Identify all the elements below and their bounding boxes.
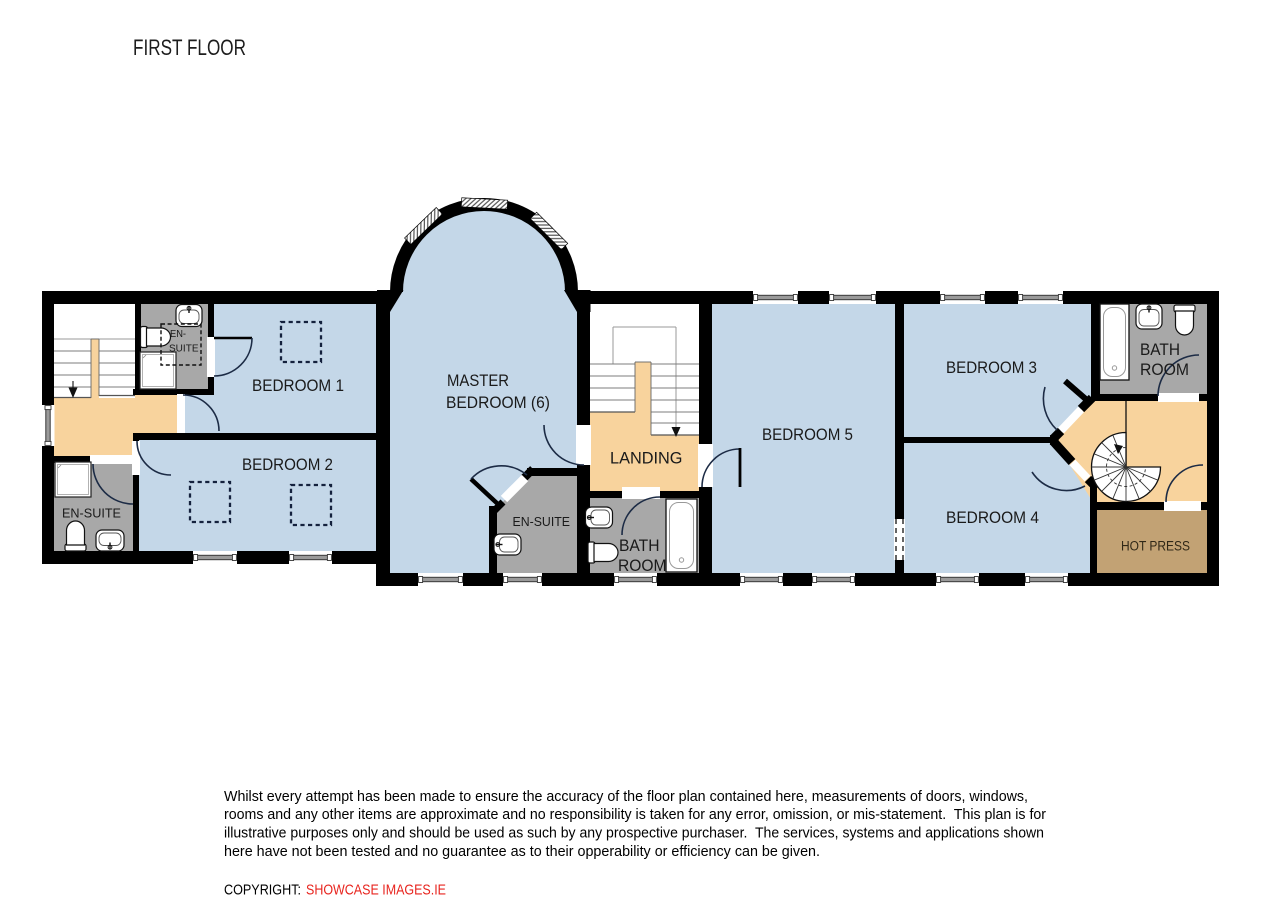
svg-text:EN-: EN- (170, 328, 186, 340)
svg-text:LANDING: LANDING (610, 450, 683, 468)
svg-text:SHOWCASE IMAGES.IE: SHOWCASE IMAGES.IE (306, 883, 446, 899)
svg-text:FIRST FLOOR: FIRST FLOOR (133, 35, 246, 60)
svg-text:Whilst every attempt has been: Whilst every attempt has been made to en… (224, 789, 1028, 805)
svg-text:rooms and any other items are: rooms and any other items are approximat… (224, 807, 1046, 823)
svg-text:BEDROOM 5: BEDROOM 5 (762, 426, 853, 444)
svg-text:MASTER: MASTER (447, 372, 509, 390)
svg-text:BEDROOM 1: BEDROOM 1 (252, 377, 344, 395)
svg-text:BATH: BATH (619, 537, 660, 555)
svg-text:SUITE: SUITE (169, 343, 199, 355)
svg-text:BEDROOM 2: BEDROOM 2 (242, 456, 333, 474)
svg-text:illustrative purposes only and: illustrative purposes only and should be… (224, 826, 1044, 842)
svg-text:EN-SUITE: EN-SUITE (513, 514, 571, 529)
svg-text:BATH: BATH (1140, 341, 1180, 359)
svg-text:EN-SUITE: EN-SUITE (62, 506, 121, 521)
svg-text:BEDROOM 3: BEDROOM 3 (946, 359, 1037, 377)
svg-text:BEDROOM (6): BEDROOM (6) (446, 394, 550, 412)
svg-text:ROOM: ROOM (618, 557, 667, 575)
svg-text:ROOM: ROOM (1140, 361, 1189, 379)
svg-text:BEDROOM 4: BEDROOM 4 (946, 509, 1039, 527)
svg-text:here have not been tested and: here have not been tested and no guarant… (224, 844, 820, 860)
svg-text:COPYRIGHT:: COPYRIGHT: (224, 883, 301, 899)
svg-text:HOT PRESS: HOT PRESS (1121, 539, 1190, 555)
